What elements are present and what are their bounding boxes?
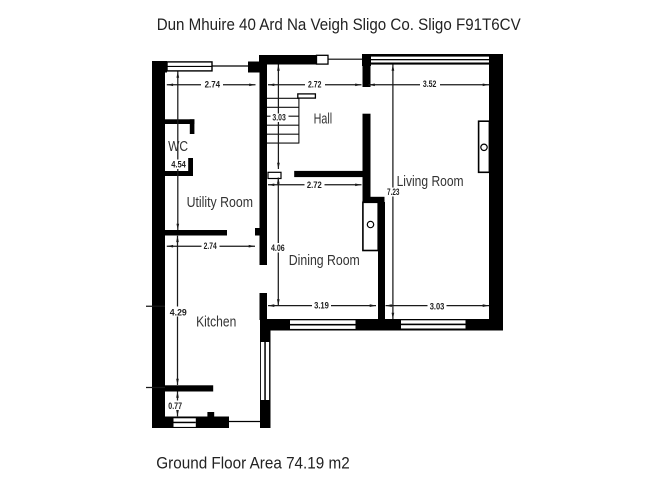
svg-text:Utility Room: Utility Room bbox=[187, 195, 253, 211]
svg-text:Living Room: Living Room bbox=[397, 174, 464, 190]
svg-text:WC: WC bbox=[168, 139, 188, 155]
svg-text:Kitchen: Kitchen bbox=[196, 314, 236, 330]
svg-text:4.06: 4.06 bbox=[271, 243, 285, 253]
svg-text:Dun Mhuire 40 Ard Na Veigh Sli: Dun Mhuire 40 Ard Na Veigh Sligo Co. Sli… bbox=[157, 16, 521, 34]
svg-text:4.54: 4.54 bbox=[171, 160, 186, 170]
svg-text:2.74: 2.74 bbox=[205, 79, 221, 89]
svg-text:2.72: 2.72 bbox=[307, 180, 322, 190]
svg-text:Dining Room: Dining Room bbox=[289, 253, 360, 269]
svg-text:2.74: 2.74 bbox=[204, 241, 217, 251]
svg-text:3.03: 3.03 bbox=[430, 302, 445, 312]
svg-text:2.72: 2.72 bbox=[308, 80, 321, 90]
svg-text:0.77: 0.77 bbox=[168, 401, 182, 411]
svg-text:Hall: Hall bbox=[314, 112, 333, 128]
svg-text:4.29: 4.29 bbox=[170, 308, 187, 318]
svg-text:3.19: 3.19 bbox=[314, 301, 329, 311]
svg-text:Ground Floor Area 74.19 m2: Ground Floor Area 74.19 m2 bbox=[156, 453, 349, 472]
svg-text:3.52: 3.52 bbox=[423, 79, 437, 89]
svg-text:3.03: 3.03 bbox=[272, 113, 285, 123]
